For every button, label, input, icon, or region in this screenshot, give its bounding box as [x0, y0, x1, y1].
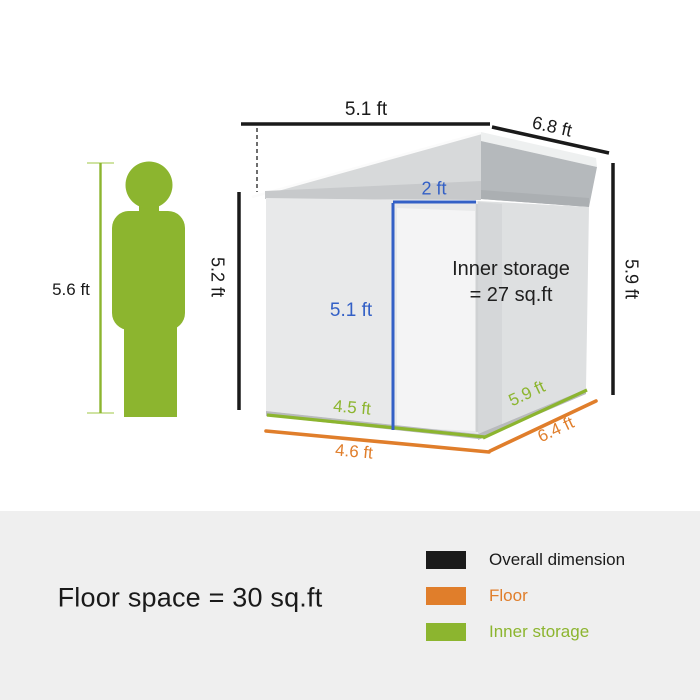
person-height-label: 5.6 ft: [52, 280, 90, 300]
inner-storage-note-line1: Inner storage: [452, 256, 570, 282]
inner-storage-note-line2: = 27 sq.ft: [452, 282, 570, 308]
legend-row-floor: Floor: [426, 587, 625, 605]
person-legs: [124, 315, 177, 417]
legend-row-inner: Inner storage: [426, 623, 625, 641]
floor-swatch: [426, 587, 466, 605]
shed-dimension-infographic: 5.6 ft 5.1 ft 6.8 ft 5.2 ft 5.9 ft 2 ft …: [0, 0, 700, 700]
door-height-label: 5.1 ft: [330, 300, 372, 322]
overall-dimension-swatch: [426, 551, 466, 569]
floor-label: Floor: [489, 586, 528, 606]
floor-width-label: 4.6 ft: [334, 440, 373, 463]
inner-width-label: 4.5 ft: [332, 396, 371, 419]
legend: Overall dimension Floor Inner storage: [426, 551, 625, 659]
inner-storage-swatch: [426, 623, 466, 641]
diagram-canvas: [0, 0, 700, 511]
person-torso: [112, 211, 185, 330]
floor-space-text: Floor space = 30 sq.ft: [58, 583, 323, 614]
overall-left-height-label: 5.2 ft: [207, 257, 228, 297]
inner-storage-label: Inner storage: [489, 622, 589, 642]
inner-storage-note: Inner storage = 27 sq.ft: [452, 256, 570, 308]
person-figure: [112, 162, 185, 418]
legend-row-overall: Overall dimension: [426, 551, 625, 569]
person-head: [126, 162, 173, 209]
overall-right-height-label: 5.9 ft: [621, 259, 642, 299]
door-width-label: 2 ft: [421, 179, 446, 200]
shed-door: [397, 208, 475, 431]
overall-width-label: 5.1 ft: [345, 99, 387, 121]
shed-side-wall-shading: [478, 202, 502, 433]
overall-dimension-label: Overall dimension: [489, 550, 625, 570]
person-measure-line: [87, 163, 114, 413]
